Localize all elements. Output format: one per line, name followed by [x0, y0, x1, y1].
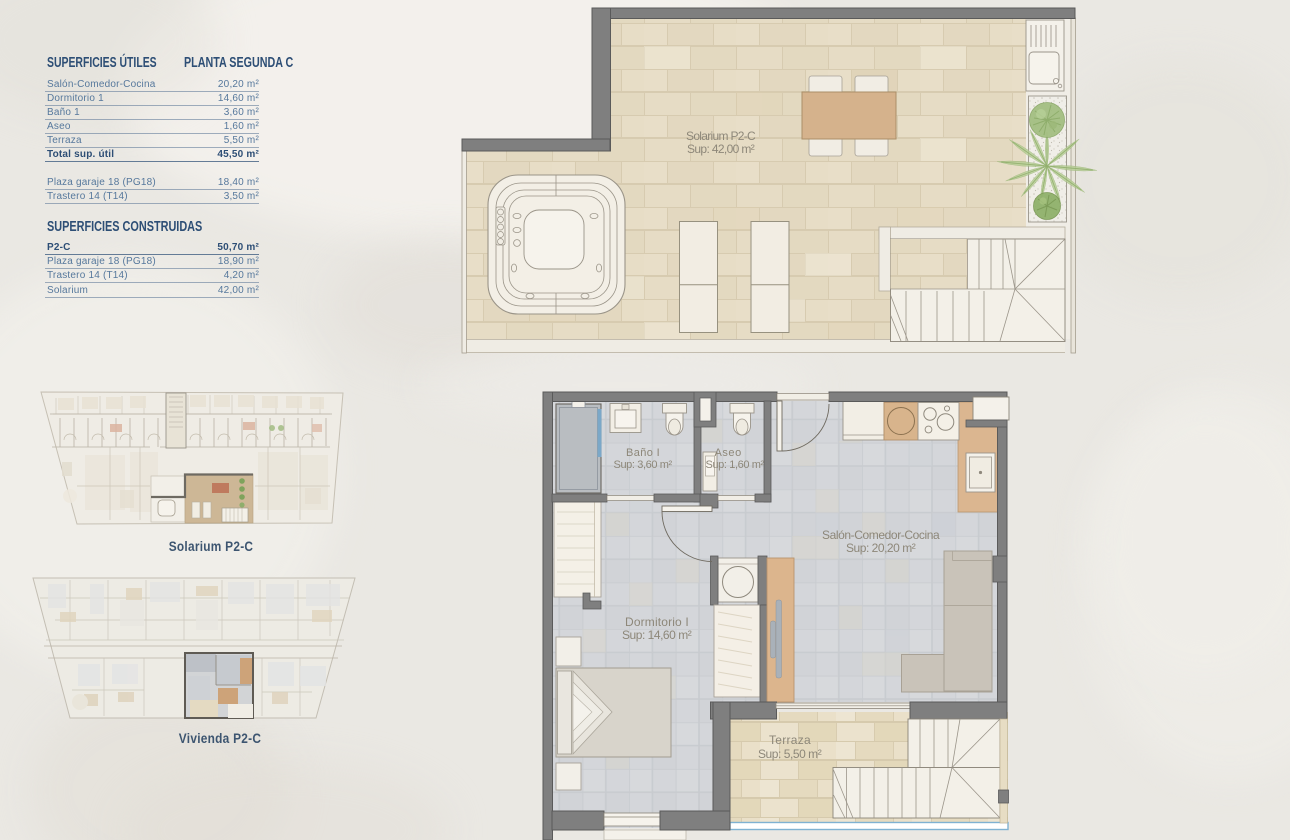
svg-text:Baño I: Baño I	[626, 447, 660, 459]
svg-text:Vivienda P2-C: Vivienda P2-C	[179, 730, 261, 746]
svg-text:Sup: 42,00 m²: Sup: 42,00 m²	[687, 142, 755, 156]
svg-text:Sup: 3,60 m²: Sup: 3,60 m²	[614, 459, 673, 471]
svg-text:Sup: 20,20 m²: Sup: 20,20 m²	[846, 541, 916, 555]
svg-text:Aseo: Aseo	[715, 447, 742, 459]
svg-text:Dormitorio I: Dormitorio I	[625, 615, 689, 629]
svg-text:Solarium P2-C: Solarium P2-C	[686, 129, 756, 143]
svg-text:Sup: 5,50 m²: Sup: 5,50 m²	[758, 747, 822, 761]
svg-text:Sup: 1,60 m²: Sup: 1,60 m²	[706, 459, 765, 471]
svg-text:Salón-Comedor-Cocina: Salón-Comedor-Cocina	[822, 528, 940, 542]
svg-text:Solarium P2-C: Solarium P2-C	[169, 538, 254, 554]
svg-text:Sup: 14,60 m²: Sup: 14,60 m²	[622, 628, 692, 642]
svg-text:Terraza: Terraza	[769, 733, 811, 747]
